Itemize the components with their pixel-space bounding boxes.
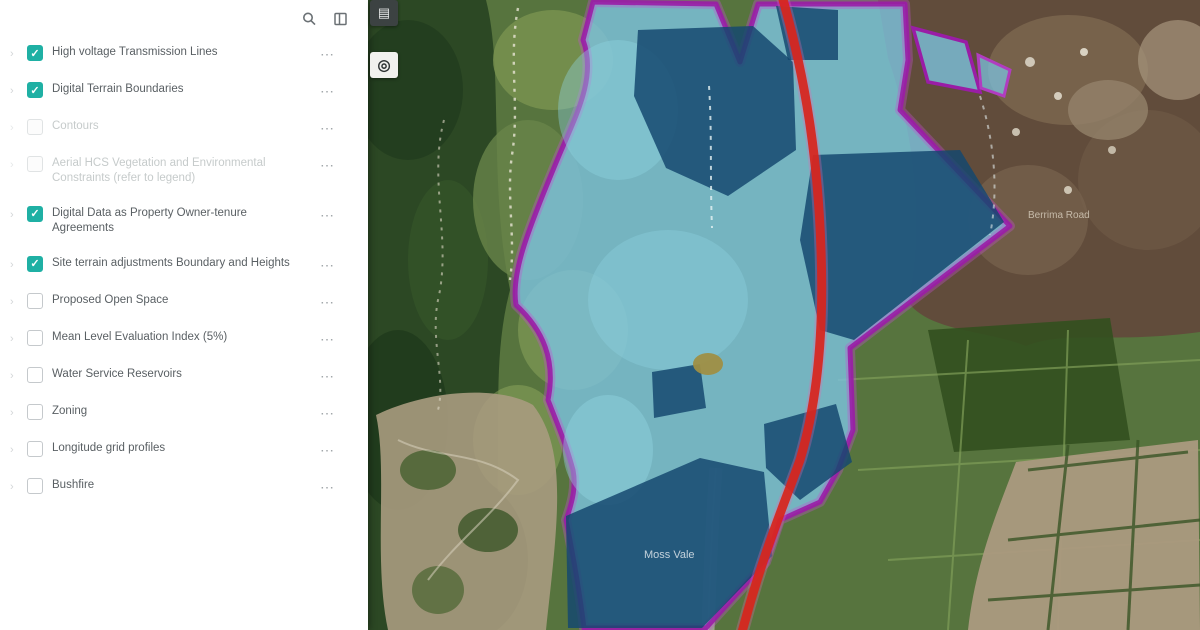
layer-options-icon[interactable]: ⋯	[317, 84, 335, 98]
place-label: Moss Vale	[644, 549, 695, 561]
layer-label: Site terrain adjustments Boundary and He…	[52, 256, 308, 271]
map-view[interactable]: Moss Vale Berrima Road ▤ ◎	[368, 0, 1200, 630]
expand-caret-icon[interactable]: ›	[10, 120, 18, 136]
layer-row: › ✓ Water Service Reservoirs ⋯	[0, 357, 368, 394]
layer-visibility-checkbox[interactable]: ✓	[27, 206, 43, 222]
expand-caret-icon[interactable]: ›	[10, 479, 18, 495]
panel-toolbar	[0, 0, 368, 33]
layer-row: › ✓ Digital Terrain Boundaries ⋯	[0, 72, 368, 109]
layer-panel: › ✓ High voltage Transmission Lines ⋯ › …	[0, 0, 368, 630]
layer-visibility-checkbox[interactable]: ✓	[27, 330, 43, 346]
layer-visibility-checkbox[interactable]: ✓	[27, 256, 43, 272]
locate-button[interactable]: ◎	[370, 52, 398, 78]
layer-visibility-checkbox[interactable]: ✓	[27, 367, 43, 383]
expand-caret-icon[interactable]: ›	[10, 442, 18, 458]
layer-visibility-checkbox[interactable]: ✓	[27, 45, 43, 61]
gis-map-viewer: › ✓ High voltage Transmission Lines ⋯ › …	[0, 0, 1200, 630]
layer-label: Aerial HCS Vegetation and Environmental …	[52, 156, 308, 186]
expand-caret-icon[interactable]: ›	[10, 405, 18, 421]
basemap-toggle-button[interactable]: ▤	[370, 0, 398, 26]
layer-label: Mean Level Evaluation Index (5%)	[52, 330, 308, 345]
expand-caret-icon[interactable]: ›	[10, 368, 18, 384]
layer-label: Digital Data as Property Owner-tenure Ag…	[52, 206, 308, 236]
layer-row: › ✓ Contours ⋯	[0, 109, 368, 146]
layer-options-icon[interactable]: ⋯	[317, 369, 335, 383]
expand-caret-icon[interactable]: ›	[10, 207, 18, 223]
layer-label: Water Service Reservoirs	[52, 367, 308, 382]
map-canvas: Moss Vale Berrima Road	[368, 0, 1200, 630]
layer-label: High voltage Transmission Lines	[52, 45, 308, 60]
expand-panel-icon[interactable]	[332, 10, 350, 28]
layer-visibility-checkbox[interactable]: ✓	[27, 404, 43, 420]
layer-options-icon[interactable]: ⋯	[317, 443, 335, 457]
layer-label: Longitude grid profiles	[52, 441, 308, 456]
layer-options-icon[interactable]: ⋯	[317, 208, 335, 222]
layer-row: › ✓ Site terrain adjustments Boundary an…	[0, 246, 368, 283]
expand-caret-icon[interactable]: ›	[10, 331, 18, 347]
layer-options-icon[interactable]: ⋯	[317, 47, 335, 61]
layer-visibility-checkbox[interactable]: ✓	[27, 478, 43, 494]
layer-options-icon[interactable]: ⋯	[317, 258, 335, 272]
layer-row: › ✓ Proposed Open Space ⋯	[0, 283, 368, 320]
search-icon[interactable]	[300, 10, 318, 28]
expand-caret-icon[interactable]: ›	[10, 83, 18, 99]
layer-label: Contours	[52, 119, 308, 134]
layer-label: Proposed Open Space	[52, 293, 308, 308]
quarry-patch	[693, 353, 723, 375]
layer-visibility-checkbox[interactable]: ✓	[27, 293, 43, 309]
expand-caret-icon[interactable]: ›	[10, 294, 18, 310]
layer-options-icon[interactable]: ⋯	[317, 406, 335, 420]
layer-visibility-checkbox[interactable]: ✓	[27, 119, 43, 135]
expand-caret-icon[interactable]: ›	[10, 46, 18, 62]
layer-visibility-checkbox[interactable]: ✓	[27, 441, 43, 457]
map-controls: ▤ ◎	[370, 0, 398, 78]
layer-label: Zoning	[52, 404, 308, 419]
layer-options-icon[interactable]: ⋯	[317, 121, 335, 135]
expand-caret-icon[interactable]: ›	[10, 257, 18, 273]
layer-options-icon[interactable]: ⋯	[317, 158, 335, 172]
layer-row: › ✓ High voltage Transmission Lines ⋯	[0, 35, 368, 72]
layer-row: › ✓ Mean Level Evaluation Index (5%) ⋯	[0, 320, 368, 357]
layer-list: › ✓ High voltage Transmission Lines ⋯ › …	[0, 35, 368, 505]
layer-row: › ✓ Zoning ⋯	[0, 394, 368, 431]
expand-caret-icon[interactable]: ›	[10, 157, 18, 173]
layer-options-icon[interactable]: ⋯	[317, 295, 335, 309]
layer-visibility-checkbox[interactable]: ✓	[27, 156, 43, 172]
layer-row: › ✓ Digital Data as Property Owner-tenur…	[0, 196, 368, 246]
layer-row: › ✓ Aerial HCS Vegetation and Environmen…	[0, 146, 368, 196]
layer-label: Digital Terrain Boundaries	[52, 82, 308, 97]
layer-row: › ✓ Bushfire ⋯	[0, 468, 368, 505]
layer-options-icon[interactable]: ⋯	[317, 480, 335, 494]
layer-label: Bushfire	[52, 478, 308, 493]
place-label: Berrima Road	[1028, 210, 1090, 221]
layer-row: › ✓ Longitude grid profiles ⋯	[0, 431, 368, 468]
layer-options-icon[interactable]: ⋯	[317, 332, 335, 346]
layer-visibility-checkbox[interactable]: ✓	[27, 82, 43, 98]
